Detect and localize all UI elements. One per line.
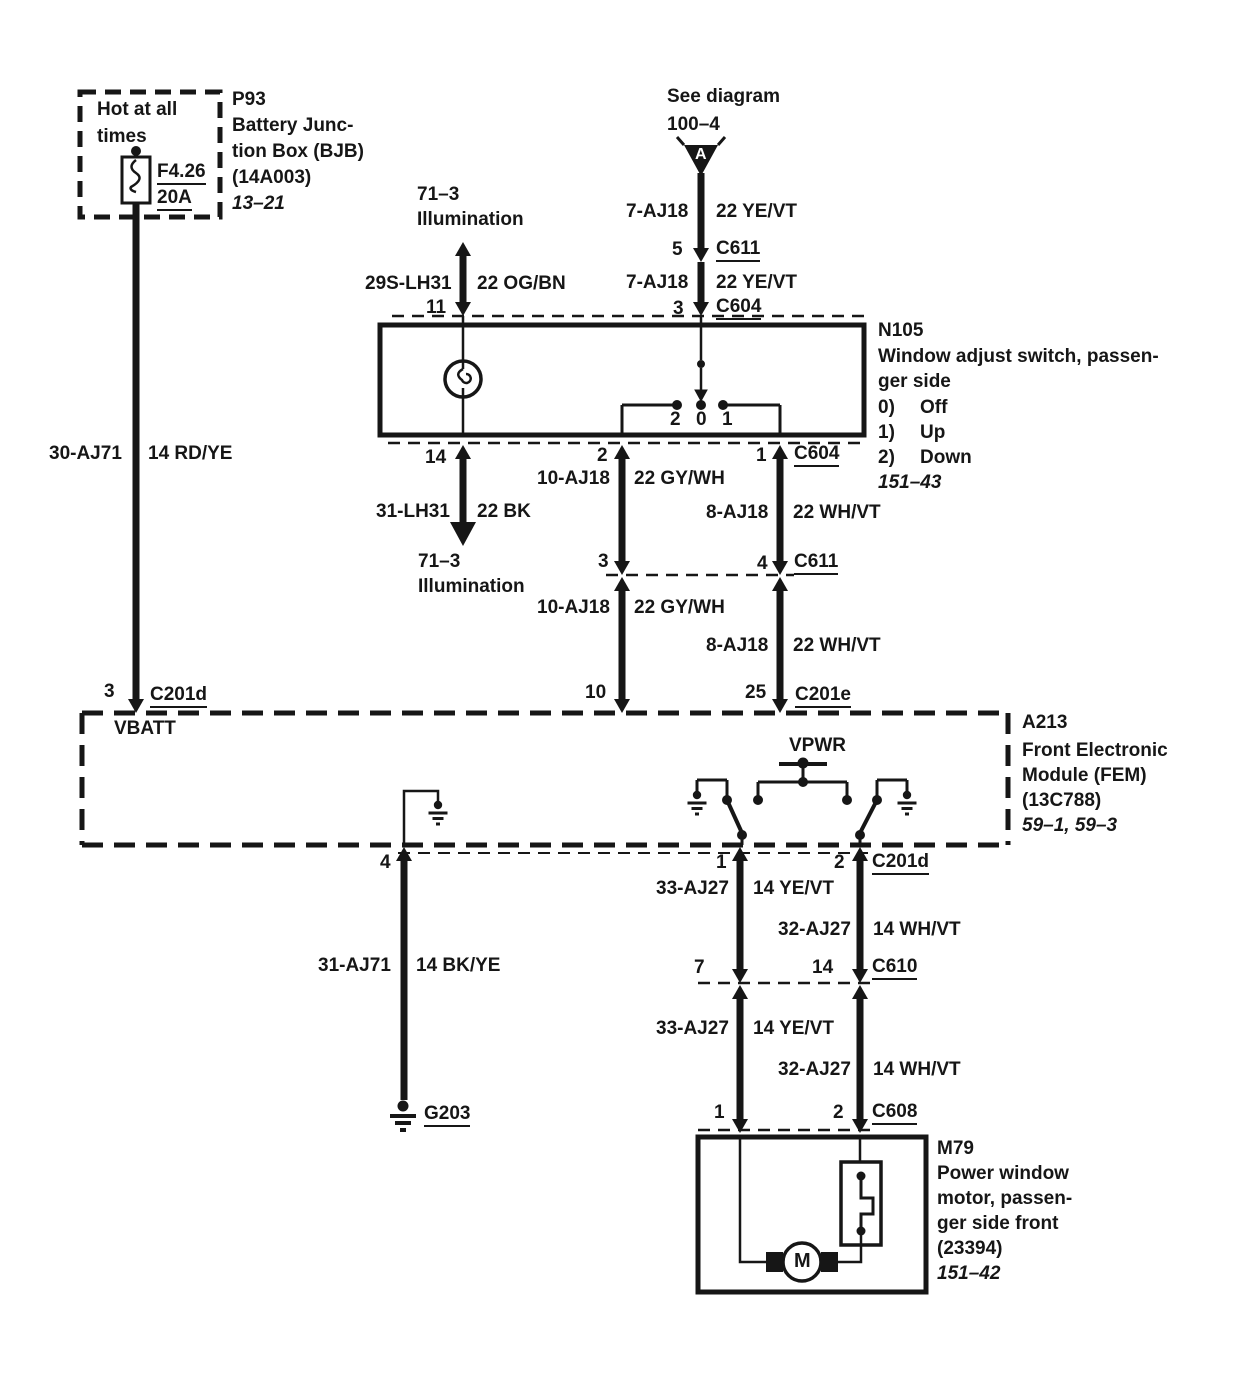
feed-lower-spec: 22 YE/VT xyxy=(716,272,797,293)
lamp-icon xyxy=(445,316,481,435)
window-up-down-wires xyxy=(622,457,780,701)
pin-11: 11 xyxy=(426,297,446,318)
pin-2-c201d-bottom: 2 xyxy=(834,852,845,873)
p93-part-number: (14A003) xyxy=(232,167,311,188)
gy-upper-circuit: 10-AJ18 xyxy=(537,468,610,489)
switch-pos-1: 1 xyxy=(722,409,733,430)
g203-ground-icon xyxy=(390,1101,416,1133)
illum-in-ref1: 71–3 xyxy=(417,184,459,205)
pin-3-c604: 3 xyxy=(673,298,684,319)
pin-4-c611: 4 xyxy=(757,553,768,574)
pin-3-c201d: 3 xyxy=(104,681,115,702)
switch-pos-2: 2 xyxy=(670,409,681,430)
wh-lower-circuit: 8-AJ18 xyxy=(706,635,768,656)
gy-upper-spec: 22 GY/WH xyxy=(634,468,725,489)
battery-wire-circuit: 30-AJ71 xyxy=(49,443,122,464)
n105-pos2-label: Down xyxy=(920,447,972,468)
n105-pos1-label: Up xyxy=(920,422,945,443)
n105-name-line2: ger side xyxy=(878,371,951,392)
battery-wire-spec: 14 RD/YE xyxy=(148,443,232,464)
motor-lower-left-spec: 14 YE/VT xyxy=(753,1018,834,1039)
illum-in-ref2: Illumination xyxy=(417,209,524,230)
fem-name-line2: Module (FEM) xyxy=(1022,765,1147,786)
down-arrow-icon xyxy=(450,522,476,546)
thermal-protector-icon xyxy=(838,1137,881,1262)
motor-icon xyxy=(740,1137,838,1281)
connector-c611-upper: C611 xyxy=(716,238,760,262)
illum-out-circuit: 31-LH31 xyxy=(376,501,450,522)
m79-name-line3: ger side front xyxy=(937,1213,1058,1234)
pin-5: 5 xyxy=(672,239,683,260)
motor-symbol-letter: M xyxy=(794,1250,811,1272)
m79-name-line2: motor, passen- xyxy=(937,1188,1072,1209)
feed-upper-circuit: 7-AJ18 xyxy=(626,201,688,222)
connector-c604-upper: C604 xyxy=(716,296,761,320)
connector-c201d-bottom: C201d xyxy=(872,851,929,875)
ground-icon xyxy=(429,801,448,826)
vbatt-label: VBATT xyxy=(114,718,176,739)
wh-lower-spec: 22 WH/VT xyxy=(793,635,881,656)
ground-wire-circuit: 31-AJ71 xyxy=(318,955,391,976)
motor-lower-left-circuit: 33-AJ27 xyxy=(656,1018,729,1039)
wh-upper-spec: 22 WH/VT xyxy=(793,502,881,523)
pin-1-c608: 1 xyxy=(714,1102,725,1123)
wiring-diagram: Hot at all times F4.26 20A P93 Battery J… xyxy=(0,0,1242,1376)
hot-at-all-times-label-2: times xyxy=(97,126,147,147)
n105-pos1-num: 1) xyxy=(878,422,895,443)
motor-lower-right-circuit: 32-AJ27 xyxy=(778,1059,851,1080)
ground-icon xyxy=(688,791,707,816)
n105-pos2-num: 2) xyxy=(878,447,895,468)
wh-upper-circuit: 8-AJ18 xyxy=(706,502,768,523)
connector-c201e: C201e xyxy=(795,684,851,708)
connector-c611-mid: C611 xyxy=(794,551,838,575)
pin-3-c611: 3 xyxy=(598,551,609,572)
pin-25-c201e: 25 xyxy=(745,682,766,703)
ground-wire-spec: 14 BK/YE xyxy=(416,955,500,976)
see-diagram-label: See diagram xyxy=(667,86,780,107)
component-id-a213: A213 xyxy=(1022,712,1067,733)
fuse-name-label: F4.26 xyxy=(157,161,206,185)
ground-g203-label: G203 xyxy=(424,1103,470,1127)
fuse-icon xyxy=(122,146,150,203)
pin-14-n105: 14 xyxy=(425,447,446,468)
connector-c610: C610 xyxy=(872,956,917,980)
fem-part-number: (13C788) xyxy=(1022,790,1101,811)
fuse-rating-label: 20A xyxy=(157,187,192,211)
offpage-marker-letter: A xyxy=(695,146,707,164)
gy-lower-circuit: 10-AJ18 xyxy=(537,597,610,618)
fem-outline xyxy=(82,713,1008,845)
p93-page-ref: 13–21 xyxy=(232,193,285,214)
pin-2-c604: 2 xyxy=(597,445,608,466)
illum-out-ref2: Illumination xyxy=(418,576,525,597)
vpwr-bus xyxy=(754,758,852,805)
fem-right-switch xyxy=(856,780,908,845)
m79-part-number: (23394) xyxy=(937,1238,1003,1259)
fem-left-switch xyxy=(697,780,747,845)
m79-name-line1: Power window xyxy=(937,1163,1069,1184)
illum-in-circuit: 29S-LH31 xyxy=(365,273,452,294)
component-id-n105: N105 xyxy=(878,320,923,341)
connector-c604-lower: C604 xyxy=(794,443,839,467)
p93-name-line1: Battery Junc- xyxy=(232,115,353,136)
illum-in-spec: 22 OG/BN xyxy=(477,273,566,294)
feed-upper-spec: 22 YE/VT xyxy=(716,201,797,222)
p93-name-line2: tion Box (BJB) xyxy=(232,141,364,162)
gy-lower-spec: 22 GY/WH xyxy=(634,597,725,618)
illum-out-spec: 22 BK xyxy=(477,501,531,522)
illum-out-ref1: 71–3 xyxy=(418,551,460,572)
component-id-m79: M79 xyxy=(937,1138,974,1159)
pin-7-c610: 7 xyxy=(694,957,705,978)
m79-page-ref: 151–42 xyxy=(937,1263,1000,1284)
n105-page-ref: 151–43 xyxy=(878,472,941,493)
connector-c608: C608 xyxy=(872,1101,917,1125)
motor-lower-right-spec: 14 WH/VT xyxy=(873,1059,961,1080)
component-id-p93: P93 xyxy=(232,89,266,110)
motor-upper-right-circuit: 32-AJ27 xyxy=(778,919,851,940)
n105-pos0-label: Off xyxy=(920,397,947,418)
fem-page-ref: 59–1, 59–3 xyxy=(1022,815,1117,836)
pin-1-c604: 1 xyxy=(756,445,767,466)
see-diagram-page: 100–4 xyxy=(667,114,720,135)
feed-lower-circuit: 7-AJ18 xyxy=(626,272,688,293)
switch-pos-0: 0 xyxy=(696,409,707,430)
vpwr-label: VPWR xyxy=(789,735,846,756)
pin-4-fem: 4 xyxy=(380,852,391,873)
pin-10-c201e: 10 xyxy=(585,682,606,703)
ground-icon xyxy=(898,791,917,816)
fem-name-line1: Front Electronic xyxy=(1022,740,1168,761)
n105-pos0-num: 0) xyxy=(878,397,895,418)
pin-14-c610: 14 xyxy=(812,957,833,978)
n105-name-line1: Window adjust switch, passen- xyxy=(878,346,1159,367)
motor-upper-left-circuit: 33-AJ27 xyxy=(656,878,729,899)
pin-1-c201d-bottom: 1 xyxy=(716,852,727,873)
motor-upper-left-spec: 14 YE/VT xyxy=(753,878,834,899)
pin-2-c608: 2 xyxy=(833,1102,844,1123)
motor-upper-right-spec: 14 WH/VT xyxy=(873,919,961,940)
hot-at-all-times-label: Hot at all xyxy=(97,99,177,120)
connector-c201d-top: C201d xyxy=(150,684,207,708)
